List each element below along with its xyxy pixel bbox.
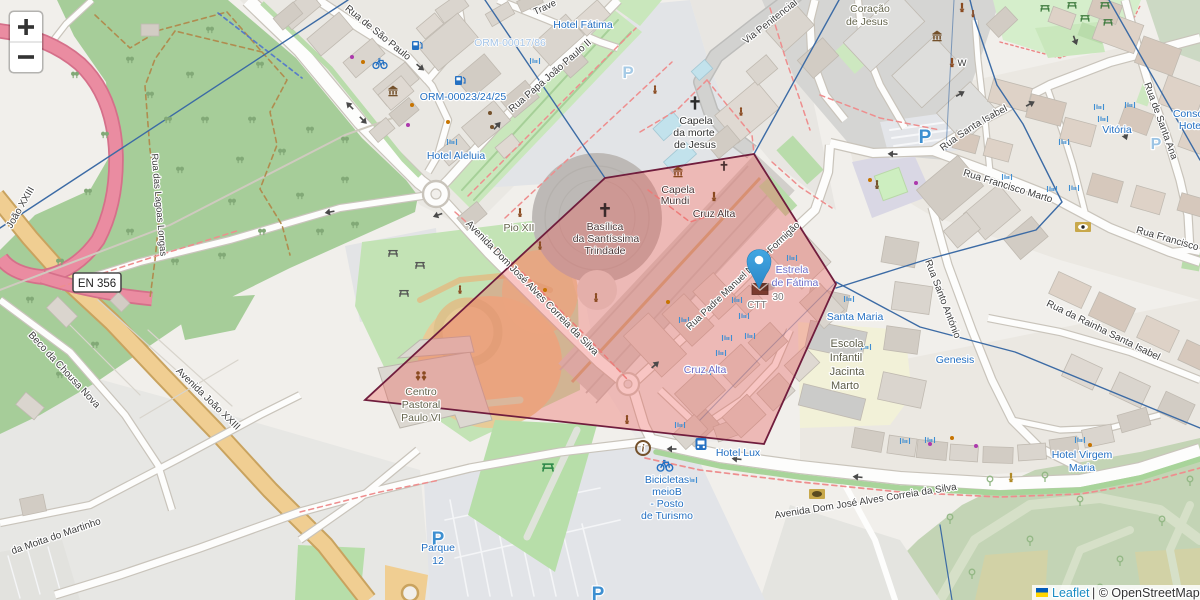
svg-text:Hotel Virgem: Hotel Virgem <box>1052 449 1113 461</box>
svg-text:Bicicletas: Bicicletas <box>645 474 689 486</box>
svg-text:Marto: Marto <box>831 380 859 392</box>
svg-text:Infantil: Infantil <box>830 352 862 364</box>
svg-text:P: P <box>1151 136 1162 153</box>
svg-text:P: P <box>622 63 633 82</box>
svg-text:de Turismo: de Turismo <box>641 510 693 522</box>
svg-text:meioB: meioB <box>652 486 682 498</box>
svg-text:W: W <box>958 58 967 69</box>
svg-text:ORM-00023/24/25: ORM-00023/24/25 <box>420 91 507 103</box>
svg-text:Genesis: Genesis <box>936 354 975 366</box>
svg-text:Cruz Alta: Cruz Alta <box>684 364 727 376</box>
svg-text:Hote: Hote <box>1179 120 1200 132</box>
svg-text:Hotel Aleluia: Hotel Aleluia <box>427 150 486 162</box>
svg-text:Santa Maria: Santa Maria <box>827 311 884 323</box>
svg-text:Jacinta: Jacinta <box>830 366 866 378</box>
svg-text:Paulo VI: Paulo VI <box>401 412 441 424</box>
svg-text:- Posto: - Posto <box>650 498 683 510</box>
svg-text:12: 12 <box>432 555 444 567</box>
svg-text:de Jesus: de Jesus <box>674 139 716 151</box>
svg-text:Hotel Lux: Hotel Lux <box>716 447 761 459</box>
svg-text:EN 356: EN 356 <box>78 278 116 290</box>
svg-text:i: i <box>642 444 645 455</box>
svg-text:30: 30 <box>772 292 784 303</box>
svg-text:Estrela: Estrela <box>776 264 809 276</box>
svg-text:Maria: Maria <box>1069 462 1095 474</box>
svg-text:Cruz Alta: Cruz Alta <box>693 208 736 220</box>
svg-text:Centro: Centro <box>405 386 437 398</box>
svg-text:Vitória: Vitória <box>1102 124 1132 136</box>
svg-text:Escola: Escola <box>830 338 864 350</box>
svg-text:Basílica: Basílica <box>587 221 624 233</box>
svg-text:da Santíssima: da Santíssima <box>573 233 640 245</box>
svg-text:Parque: Parque <box>421 542 455 554</box>
svg-text:Pio XII: Pio XII <box>504 222 535 234</box>
svg-text:P: P <box>919 127 932 148</box>
svg-text:| © OpenStreetMap: | © OpenStreetMap <box>1092 586 1200 600</box>
svg-text:da morte: da morte <box>673 127 715 139</box>
svg-text:Mundi: Mundi <box>661 195 690 207</box>
svg-text:CTT: CTT <box>747 300 766 311</box>
svg-text:ORM-00017/86: ORM-00017/86 <box>474 37 546 49</box>
svg-text:Leaflet: Leaflet <box>1052 586 1090 600</box>
svg-text:P: P <box>592 584 605 600</box>
svg-text:Consó: Consó <box>1173 108 1200 120</box>
svg-text:Hotel Fátima: Hotel Fátima <box>553 19 613 31</box>
svg-text:Coração: Coração <box>850 3 890 15</box>
svg-text:Capela: Capela <box>679 115 712 127</box>
svg-text:de Jesus: de Jesus <box>846 16 888 28</box>
svg-text:Trindade: Trindade <box>584 245 625 257</box>
svg-text:Pastoral: Pastoral <box>402 399 441 411</box>
svg-text:de Fátima: de Fátima <box>772 277 819 289</box>
